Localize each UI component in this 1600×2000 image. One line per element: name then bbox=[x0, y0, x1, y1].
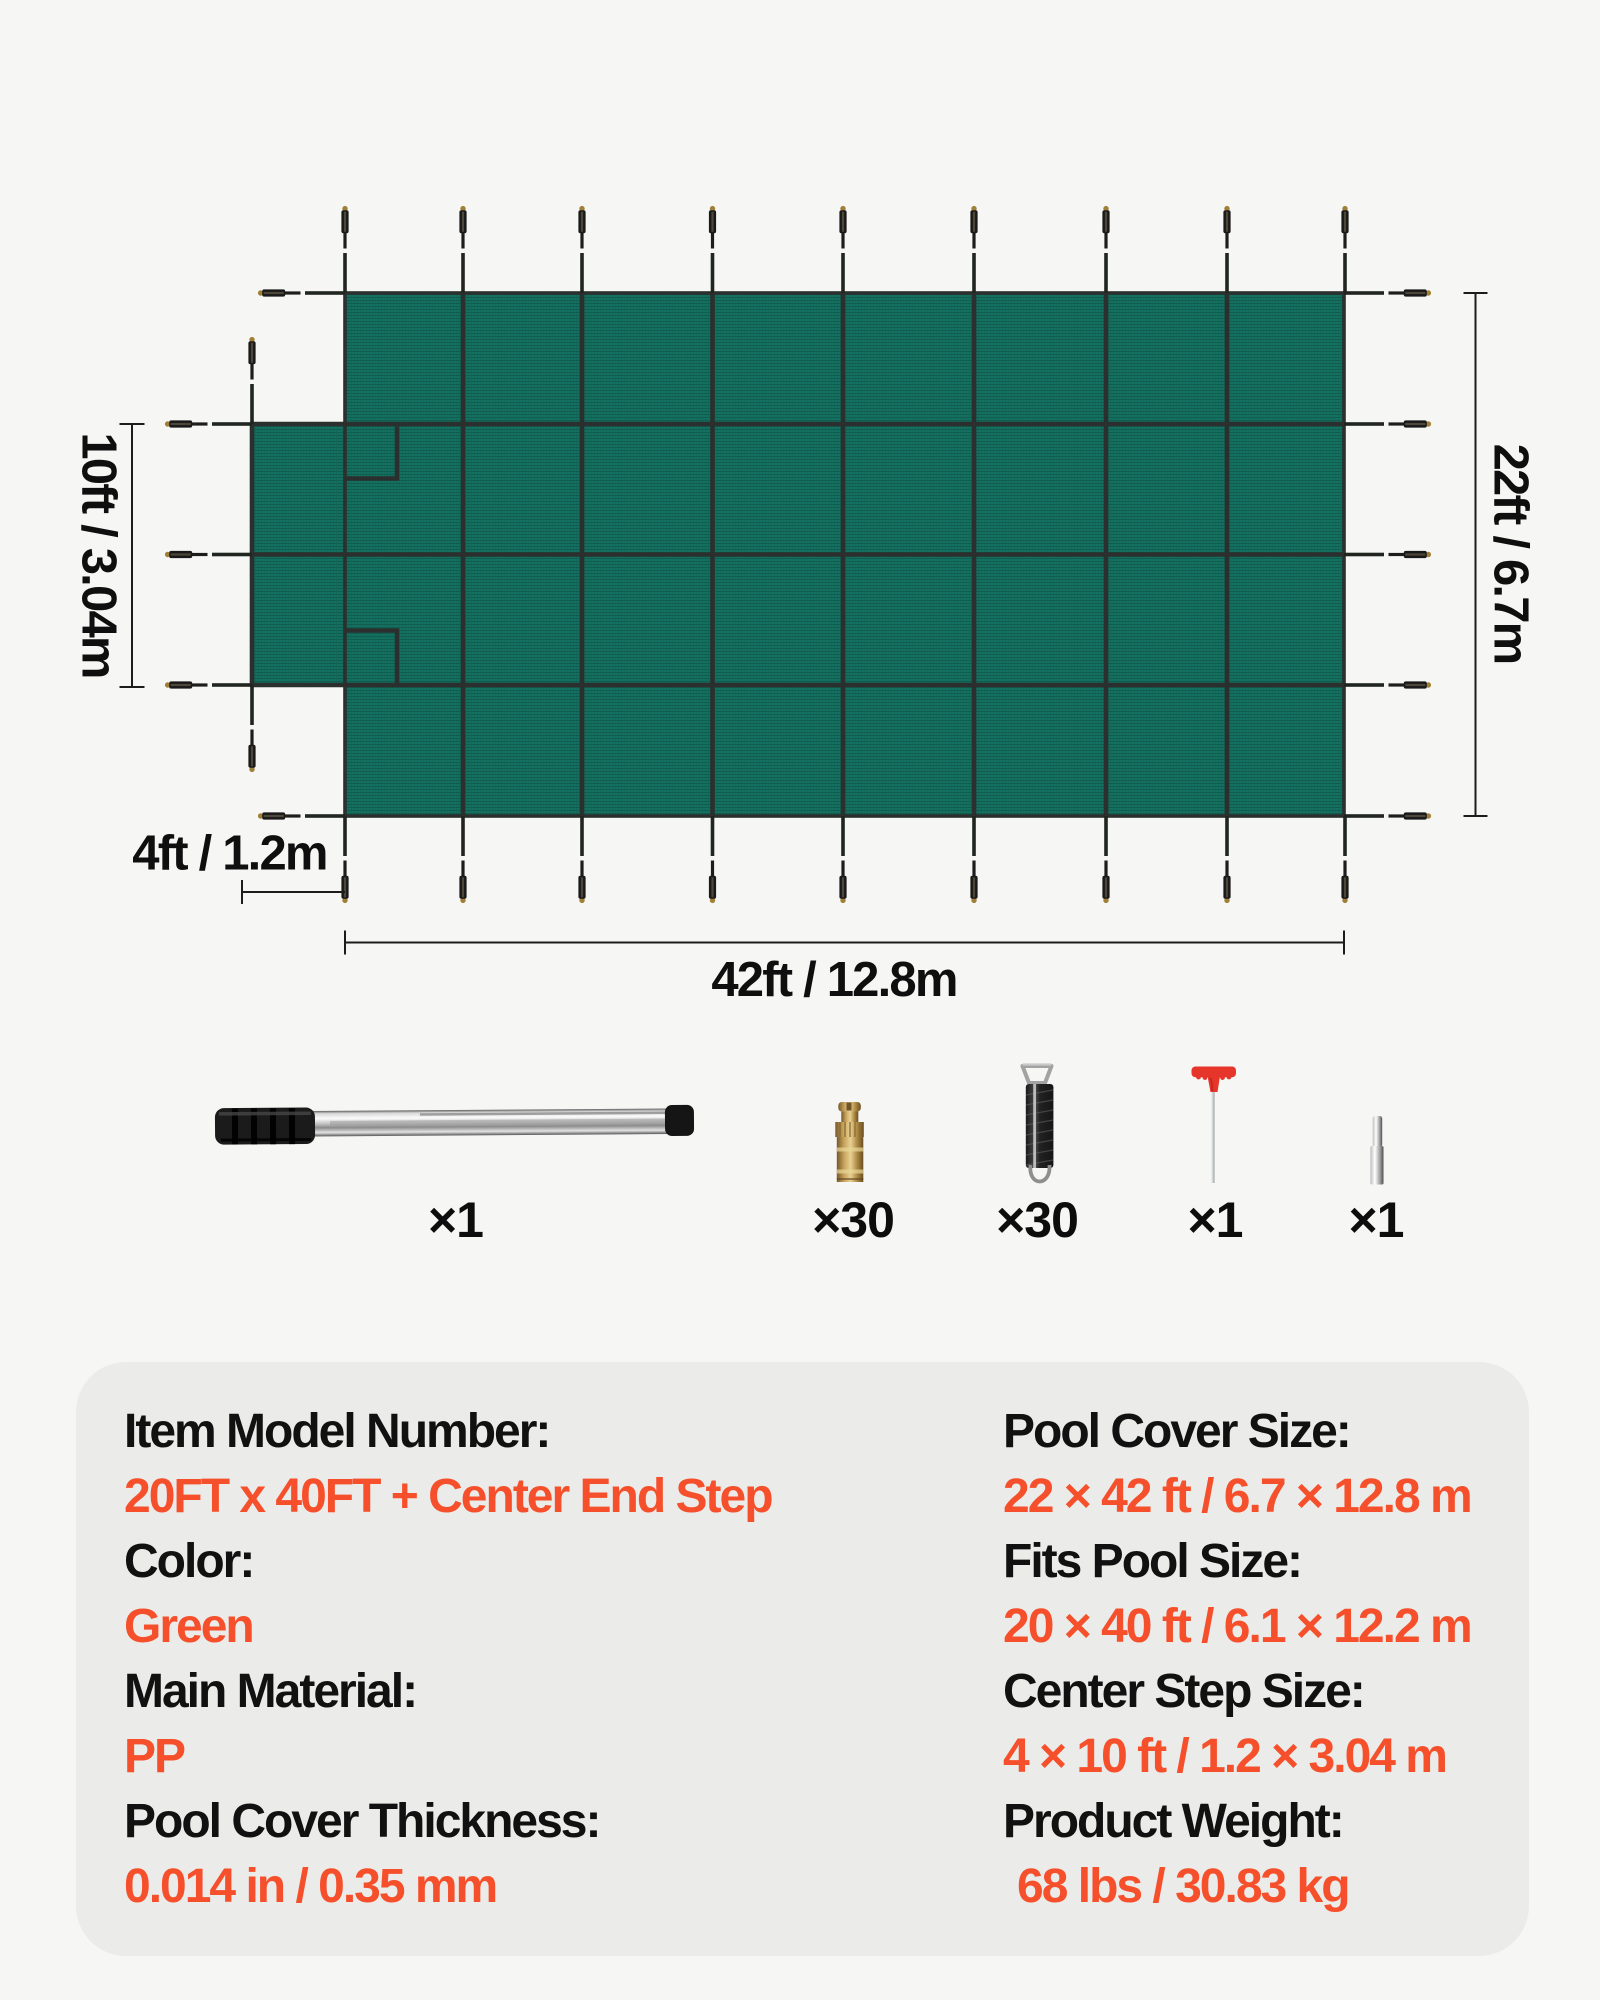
svg-text:×1: ×1 bbox=[1348, 1192, 1403, 1248]
svg-text:×30: ×30 bbox=[996, 1192, 1078, 1248]
svg-text:42ft / 12.8m: 42ft / 12.8m bbox=[711, 953, 956, 1007]
svg-text:×1: ×1 bbox=[1187, 1192, 1242, 1248]
svg-text:10ft / 3.04m: 10ft / 3.04m bbox=[72, 432, 126, 677]
svg-text:×1: ×1 bbox=[428, 1192, 483, 1248]
svg-text:×30: ×30 bbox=[812, 1192, 894, 1248]
svg-text:4ft / 1.2m: 4ft / 1.2m bbox=[132, 827, 326, 881]
svg-text:22ft / 6.7m: 22ft / 6.7m bbox=[1484, 444, 1538, 664]
